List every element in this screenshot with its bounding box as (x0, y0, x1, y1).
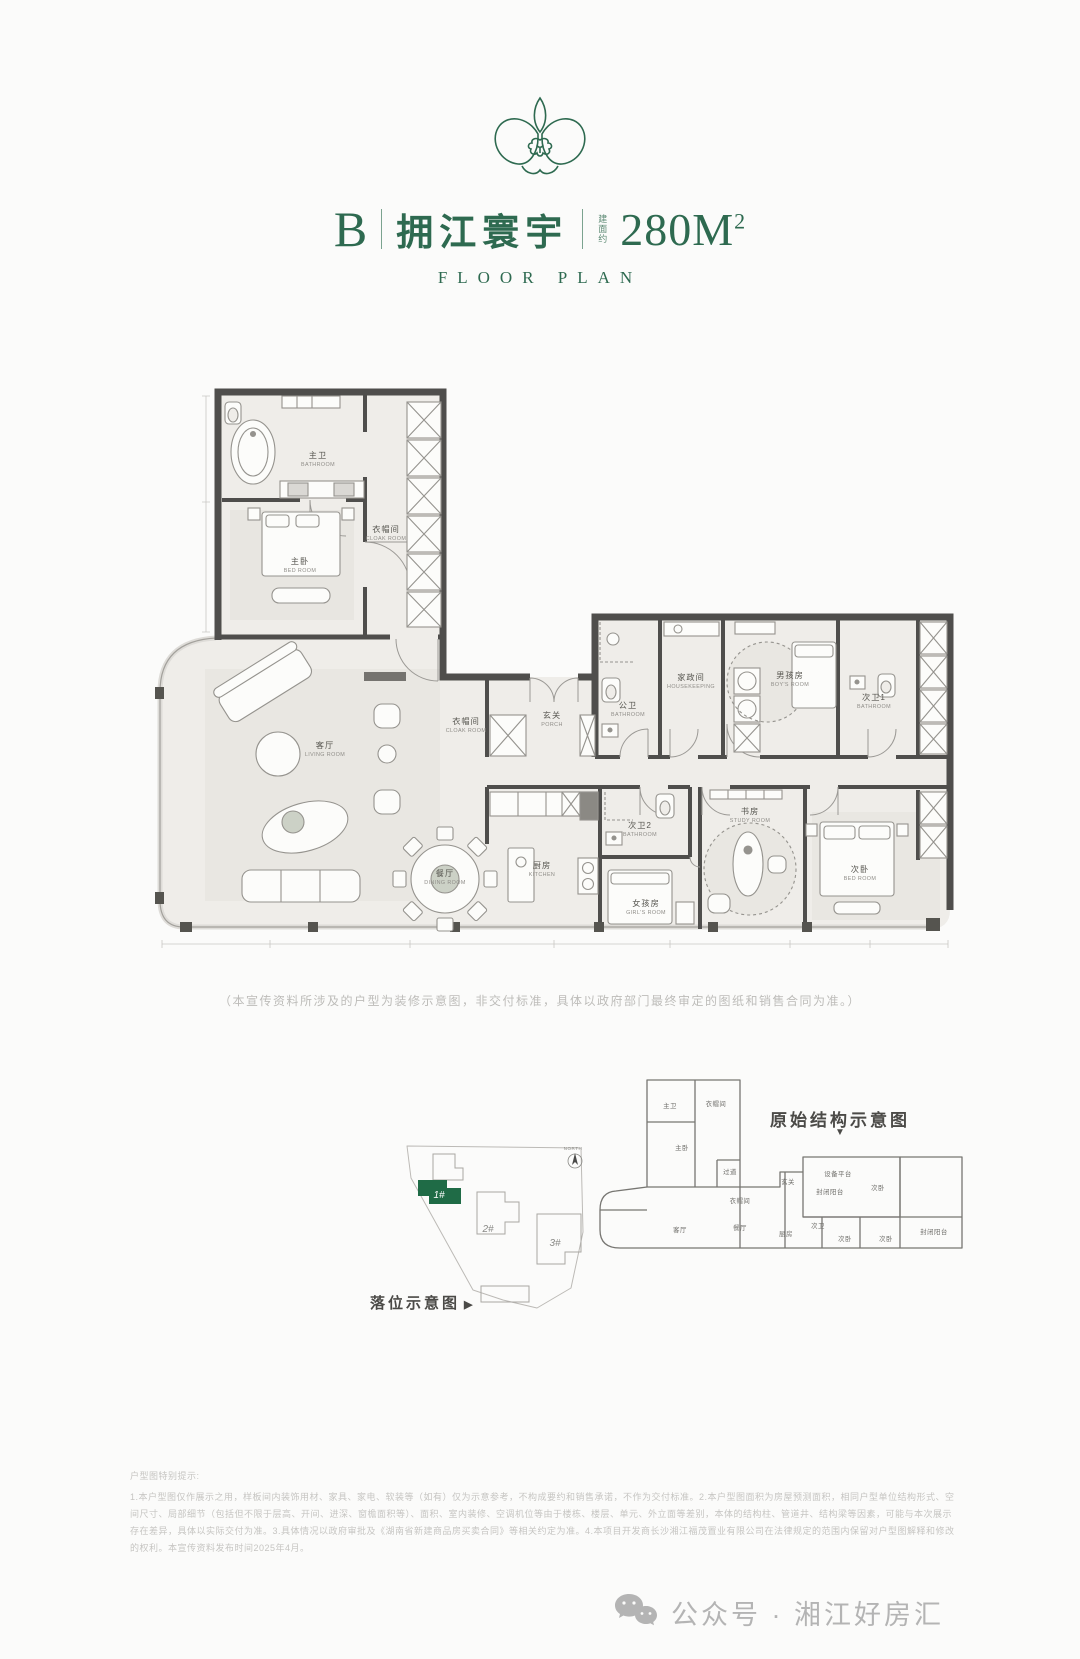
area-value: 280M2 (620, 203, 746, 256)
structure-room-label: 厨房 (779, 1229, 793, 1238)
structure-room-label: 设备平台 (824, 1169, 852, 1178)
structure-room-label: 封闭阳台 (920, 1227, 948, 1236)
building-label: 1# (433, 1190, 445, 1201)
notes-title: 户型图特别提示: (130, 1468, 960, 1485)
floor-plan: 主卫BATHROOM衣帽间CLOAK ROOM主卧BED ROOM客厅LIVIN… (150, 382, 960, 962)
footer: 公众号 · 湘江好房汇 (0, 1592, 1012, 1632)
area-prefix: 建面约 (597, 214, 606, 244)
site-plan-caption: 落位示意图▶ (370, 1292, 475, 1313)
site-plan-caption-text: 落位示意图 (370, 1295, 460, 1312)
notes-block: 户型图特别提示: 1.本户型图仅作展示之用，样板间内装饰用材、家具、家电、软装等… (130, 1468, 960, 1557)
structure-room-label: 玄关 (781, 1177, 795, 1186)
building-label: 2# (481, 1224, 494, 1235)
structure-room-label: 次卧 (871, 1183, 885, 1192)
structure-room-label: 衣帽间 (706, 1099, 727, 1108)
project-name: 拥江寰宇 (396, 202, 568, 256)
unit-label: B (334, 204, 367, 254)
structure-room-label: 封闭阳台 (816, 1187, 844, 1196)
structure-room-label: 餐厅 (733, 1223, 747, 1232)
caption-arrow-icon: ▶ (464, 1299, 475, 1311)
structure-room-label: 次卫 (811, 1221, 825, 1230)
footer-text: 公众号 · 湘江好房汇 (671, 1593, 944, 1632)
area-exponent: 2 (734, 208, 746, 233)
structure-diagram: 主卫衣帽间主卧过道衣帽间玄关设备平台封闭阳台次卧客厅餐厅厨房次卫次卧次卧封闭阳台 (590, 1060, 970, 1260)
structure-room-label: 次卧 (879, 1234, 893, 1243)
room-label: 玄关PORCH (541, 710, 562, 728)
building-label: NORTH (564, 1146, 583, 1151)
header: B 拥江寰宇 建面约 280M2 FLOOR PLAN (0, 96, 1080, 288)
structure-room-label: 次卧 (838, 1234, 852, 1243)
plan-disclaimer: （本宣传资料所涉及的户型为装修示意图，非交付标准，具体以政府部门最终审定的图纸和… (0, 992, 1080, 1009)
floor-plan-subtitle: FLOOR PLAN (0, 268, 1080, 288)
notes-body: 1.本户型图仅作展示之用，样板间内装饰用材、家具、家电、软装等（如有）仅为示意参… (130, 1489, 960, 1557)
title-row: B 拥江寰宇 建面约 280M2 (0, 202, 1080, 256)
structure-room-label: 衣帽间 (730, 1196, 751, 1205)
site-plan: 1#2#3#NORTH (385, 1140, 595, 1315)
divider (582, 209, 583, 249)
structure-room-label: 客厅 (673, 1225, 687, 1234)
north-compass (568, 1153, 582, 1168)
wardrobe-hatch (407, 402, 441, 627)
room-label: 男孩房BOY'S ROOM (771, 670, 809, 688)
flyer-page: { "header": { "unit_label": "B", "projec… (0, 0, 1080, 1659)
divider (381, 209, 382, 249)
wechat-icon (613, 1592, 659, 1632)
structure-room-label: 主卫 (663, 1101, 677, 1110)
structure-labels: 主卫衣帽间主卧过道衣帽间玄关设备平台封闭阳台次卧客厅餐厅厨房次卫次卧次卧封闭阳台 (663, 1099, 948, 1243)
building-label: 3# (549, 1238, 561, 1249)
site-buildings (433, 1154, 581, 1302)
structure-room-label: 主卧 (675, 1143, 689, 1152)
structure-walls (600, 1080, 962, 1248)
orchid-logo-icon (488, 96, 592, 188)
structure-room-label: 过道 (723, 1167, 737, 1176)
